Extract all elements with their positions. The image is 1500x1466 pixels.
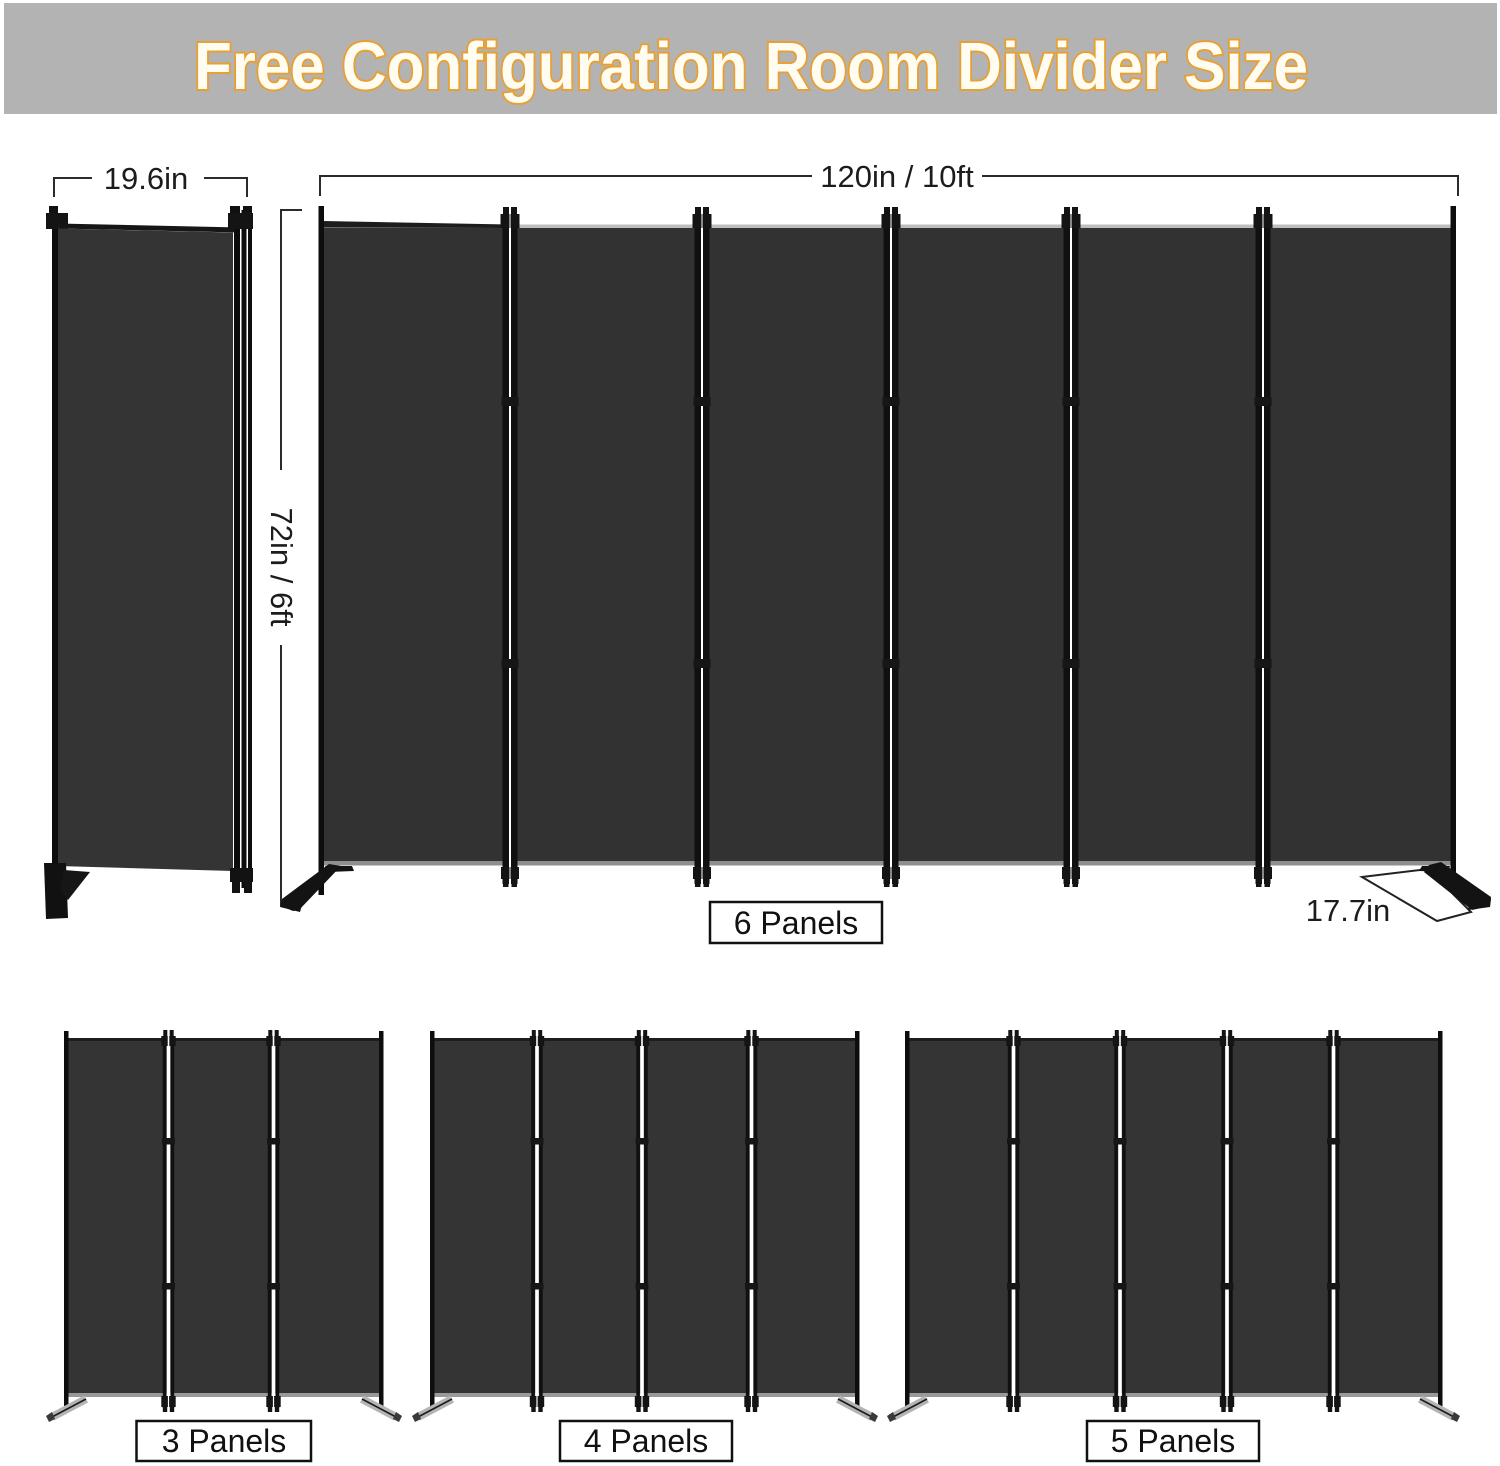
svg-text:5 Panels: 5 Panels bbox=[1111, 1423, 1236, 1459]
svg-text:19.6in: 19.6in bbox=[104, 161, 188, 196]
svg-text:Free Configuration Room Divide: Free Configuration Room Divider Size bbox=[194, 29, 1308, 104]
svg-text:6 Panels: 6 Panels bbox=[734, 905, 859, 941]
svg-text:120in / 10ft: 120in / 10ft bbox=[820, 159, 974, 194]
svg-text:4 Panels: 4 Panels bbox=[584, 1423, 709, 1459]
svg-text:72in / 6ft: 72in / 6ft bbox=[264, 508, 299, 627]
svg-text:3 Panels: 3 Panels bbox=[162, 1423, 287, 1459]
svg-text:17.7in: 17.7in bbox=[1306, 893, 1390, 928]
